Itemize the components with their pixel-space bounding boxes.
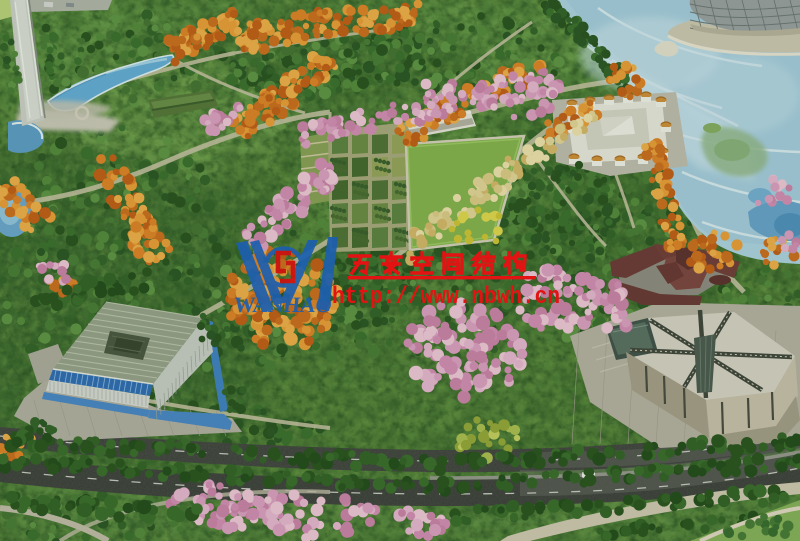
svg-text:http://www.nbwh.cn: http://www.nbwh.cn — [332, 284, 560, 311]
svg-text:WANHAO: WANHAO — [233, 292, 334, 317]
